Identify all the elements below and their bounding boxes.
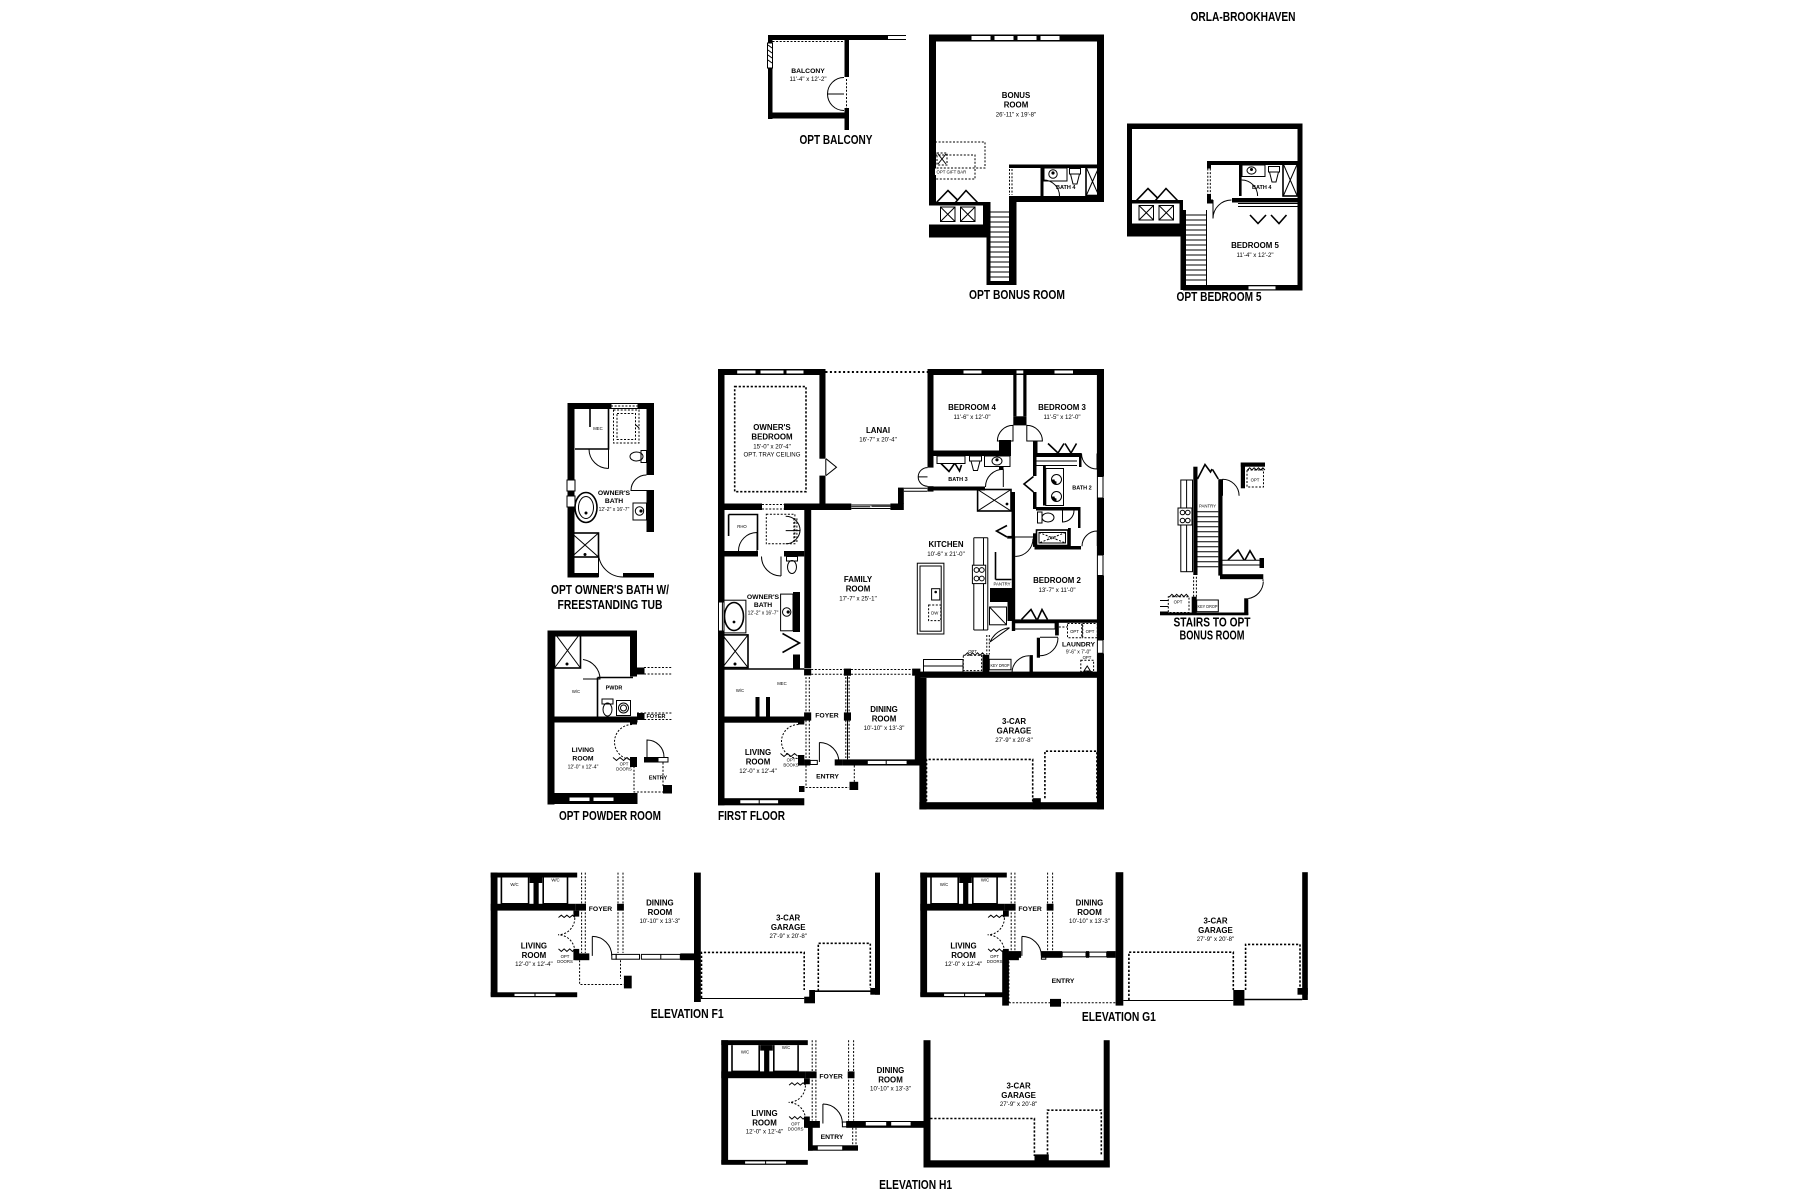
svg-text:LIVING: LIVING [745, 748, 771, 757]
svg-text:DW: DW [931, 611, 939, 616]
svg-text:12'-0" x 12'-4": 12'-0" x 12'-4" [568, 765, 599, 771]
svg-text:ELEVATION G1: ELEVATION G1 [1082, 1010, 1156, 1024]
svg-text:MEC: MEC [593, 426, 603, 431]
svg-text:DINING: DINING [870, 705, 898, 714]
svg-text:OPT: OPT [1048, 536, 1057, 541]
svg-text:ENTRY: ENTRY [1052, 978, 1075, 985]
svg-text:ELEVATION H1: ELEVATION H1 [879, 1178, 952, 1192]
svg-text:BEDROOM 5: BEDROOM 5 [1231, 241, 1279, 250]
svg-text:11'-5" x 12'-0": 11'-5" x 12'-0" [1043, 414, 1080, 421]
svg-text:PANTRY: PANTRY [1199, 504, 1216, 509]
svg-text:12'-0" x 12'-4": 12'-0" x 12'-4" [739, 768, 776, 775]
svg-text:17'-7" x 25'-1": 17'-7" x 25'-1" [839, 596, 876, 603]
svg-text:BEDROOM 4: BEDROOM 4 [948, 403, 996, 412]
svg-text:3-CAR: 3-CAR [776, 914, 800, 923]
svg-text:ROOM: ROOM [746, 758, 771, 767]
svg-text:BEDROOM 2: BEDROOM 2 [1033, 576, 1081, 585]
svg-text:OPT GIFT BAR: OPT GIFT BAR [937, 170, 967, 175]
svg-text:11'-4" x 12'-2": 11'-4" x 12'-2" [1236, 252, 1273, 259]
svg-text:OWNER'S: OWNER'S [753, 423, 790, 432]
svg-text:ROOM: ROOM [572, 756, 593, 763]
svg-text:3-CAR: 3-CAR [1007, 1082, 1031, 1091]
svg-text:BONUS ROOM: BONUS ROOM [1180, 629, 1245, 643]
svg-text:BOOKS: BOOKS [783, 763, 798, 768]
svg-text:OPT: OPT [1251, 478, 1260, 483]
svg-text:GARAGE: GARAGE [771, 923, 806, 932]
svg-text:27'-9" x 20'-8": 27'-9" x 20'-8" [995, 737, 1032, 744]
svg-text:FREESTANDING TUB: FREESTANDING TUB [558, 598, 663, 612]
svg-text:ENTRY: ENTRY [816, 774, 839, 781]
svg-text:BEDROOM 3: BEDROOM 3 [1038, 403, 1086, 412]
svg-text:FOYER: FOYER [647, 714, 666, 720]
svg-text:GARAGE: GARAGE [997, 727, 1032, 736]
svg-text:BATH 4: BATH 4 [1252, 185, 1272, 191]
svg-text:FAMILY: FAMILY [844, 575, 873, 584]
svg-text:3-CAR: 3-CAR [1203, 917, 1227, 926]
svg-text:DOORS: DOORS [616, 767, 632, 772]
svg-text:10'-10" x 13'-3": 10'-10" x 13'-3" [864, 725, 905, 732]
svg-text:12'-2" x 16'-7": 12'-2" x 16'-7" [748, 611, 779, 617]
svg-text:12'-2" x 16'-7": 12'-2" x 16'-7" [599, 507, 630, 513]
svg-text:OPT. TRAY CEILING: OPT. TRAY CEILING [744, 452, 801, 459]
svg-text:PWDR: PWDR [606, 686, 623, 692]
svg-text:OPT BALCONY: OPT BALCONY [800, 133, 874, 147]
svg-text:BATH 4: BATH 4 [1056, 185, 1076, 191]
svg-text:26'-11" x 19'-8": 26'-11" x 19'-8" [996, 112, 1036, 119]
svg-text:11'-6" x 12'-0": 11'-6" x 12'-0" [953, 414, 990, 421]
svg-text:OWNER'S: OWNER'S [747, 594, 780, 601]
svg-text:16'-7" x 20'-4": 16'-7" x 20'-4" [859, 437, 896, 444]
svg-text:W/C: W/C [736, 688, 744, 693]
svg-text:ENTRY: ENTRY [649, 776, 668, 782]
svg-text:ROOM: ROOM [872, 715, 897, 724]
svg-text:OPT: OPT [968, 649, 977, 654]
svg-text:LANAI: LANAI [866, 426, 890, 435]
svg-text:ELEVATION F1: ELEVATION F1 [651, 1007, 724, 1021]
svg-text:KITCHEN: KITCHEN [928, 540, 963, 549]
svg-text:BATH 3: BATH 3 [948, 477, 967, 483]
svg-text:OPT BONUS ROOM: OPT BONUS ROOM [969, 288, 1065, 302]
svg-text:OPT: OPT [1086, 629, 1095, 634]
svg-text:OWNER'S: OWNER'S [598, 490, 631, 497]
svg-text:ENTRY: ENTRY [821, 1134, 844, 1141]
svg-text:ROOM: ROOM [1004, 101, 1029, 110]
svg-text:27'-9" x 20'-8": 27'-9" x 20'-8" [1000, 1101, 1037, 1108]
svg-text:BATH 2: BATH 2 [1072, 486, 1091, 492]
svg-text:STAIRS TO OPT: STAIRS TO OPT [1174, 616, 1251, 630]
svg-text:W/C: W/C [572, 689, 580, 694]
svg-text:ORLA-BROOKHAVEN: ORLA-BROOKHAVEN [1191, 10, 1296, 24]
svg-text:27'-9" x 20'-8": 27'-9" x 20'-8" [769, 933, 806, 940]
svg-text:27'-9" x 20'-8": 27'-9" x 20'-8" [1197, 936, 1234, 943]
svg-text:OPT: OPT [1083, 655, 1092, 660]
svg-text:FOYER: FOYER [815, 713, 839, 720]
svg-text:GARAGE: GARAGE [1198, 926, 1233, 935]
svg-text:OPT POWDER ROOM: OPT POWDER ROOM [559, 809, 661, 823]
svg-text:FIRST FLOOR: FIRST FLOOR [718, 809, 785, 823]
svg-text:BATH: BATH [754, 602, 772, 609]
svg-text:11'-4" x 12'-2": 11'-4" x 12'-2" [789, 76, 826, 83]
svg-text:OPT: OPT [1174, 600, 1183, 605]
svg-text:MEC: MEC [777, 681, 787, 686]
svg-text:13'-7" x 11'-0": 13'-7" x 11'-0" [1038, 587, 1075, 594]
svg-text:15'-0" x 20'-4": 15'-0" x 20'-4" [753, 444, 790, 451]
svg-text:OPT BEDROOM 5: OPT BEDROOM 5 [1177, 290, 1262, 304]
svg-text:KEY DROP: KEY DROP [991, 663, 1010, 668]
svg-text:OPT OWNER'S BATH W/: OPT OWNER'S BATH W/ [551, 583, 669, 597]
svg-text:3-CAR: 3-CAR [1002, 717, 1026, 726]
svg-text:GARAGE: GARAGE [1001, 1091, 1036, 1100]
svg-text:OPT: OPT [1070, 629, 1079, 634]
svg-text:BALCONY: BALCONY [791, 68, 825, 75]
svg-text:PANTRY: PANTRY [993, 582, 1010, 587]
svg-text:BATH: BATH [605, 498, 623, 505]
svg-text:KEY DROP: KEY DROP [1198, 604, 1218, 609]
svg-text:LIVING: LIVING [572, 747, 595, 754]
svg-text:ROOM: ROOM [846, 585, 871, 594]
svg-text:BONUS: BONUS [1002, 91, 1031, 100]
svg-text:LAUNDRY: LAUNDRY [1062, 642, 1095, 649]
svg-text:BEDROOM: BEDROOM [751, 433, 793, 442]
svg-text:RHO: RHO [737, 524, 747, 529]
svg-text:10'-6" x 21'-0": 10'-6" x 21'-0" [927, 551, 964, 558]
